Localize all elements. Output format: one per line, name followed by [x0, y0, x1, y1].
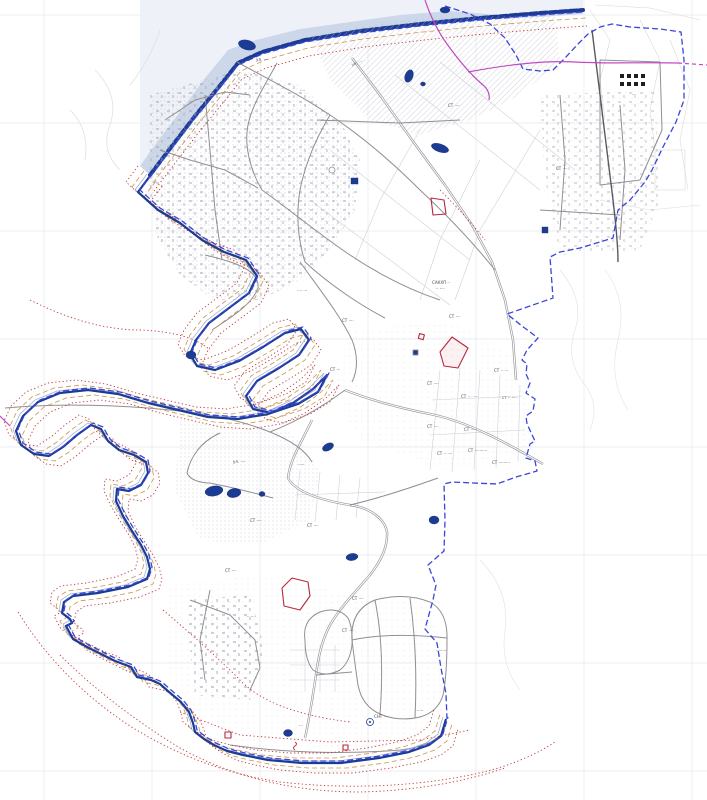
map-label: СТ ···· — [352, 596, 364, 601]
map-label: СТ ···· — [427, 381, 439, 386]
map-label: ул. ···· — [256, 57, 269, 62]
map-label: СТ ···· — [448, 103, 460, 108]
map-label: СТ ···· — [225, 568, 237, 573]
map-label: СТ ···· — [307, 523, 319, 528]
facility-buildings — [620, 74, 645, 86]
map-label: ·· ···· — [247, 614, 256, 619]
plan-map: ул. ····ул. ·······СТ ·······СТ ········… — [0, 0, 707, 800]
map-label: СТ ···· — [342, 628, 354, 633]
map-label: ···· — [300, 88, 305, 93]
map-label: СТ ·· · ··· — [461, 394, 478, 399]
map-label: ····· — [298, 462, 304, 467]
map-label: СТ ····· — [464, 427, 477, 432]
map-label: ···· ··· — [297, 288, 307, 293]
map-label: ····· — [417, 708, 423, 713]
map-label: САКХП ·· — [432, 280, 450, 285]
map-label: ··· — [632, 92, 636, 97]
map-label: СНТ ···· — [374, 714, 389, 719]
map-label: ··· — [299, 723, 303, 728]
map-canvas: ул. ····ул. ·······СТ ·······СТ ········… — [0, 0, 707, 800]
map-label: СТ ·· ···· — [437, 451, 452, 456]
map-label: ст ·· ···· — [502, 395, 517, 400]
map-label: ул. ···· — [233, 459, 246, 464]
map-label: СТ ··· — [330, 367, 340, 372]
map-label: СТ ···· — [342, 318, 354, 323]
map-label: СТ ···· — [449, 314, 461, 319]
map-label: ·· ···· — [436, 286, 445, 291]
map-label: СТ ···· — [427, 424, 439, 429]
map-label: СТ ·········· — [468, 448, 487, 453]
built-up-areas — [148, 15, 660, 755]
map-label: СТ ···· — [250, 518, 262, 523]
map-label: ········ — [436, 648, 446, 653]
map-label: СТ ········· — [492, 460, 510, 465]
map-label: СТ ·· ··· — [494, 368, 508, 373]
map-label: СТ ···· — [556, 166, 568, 171]
